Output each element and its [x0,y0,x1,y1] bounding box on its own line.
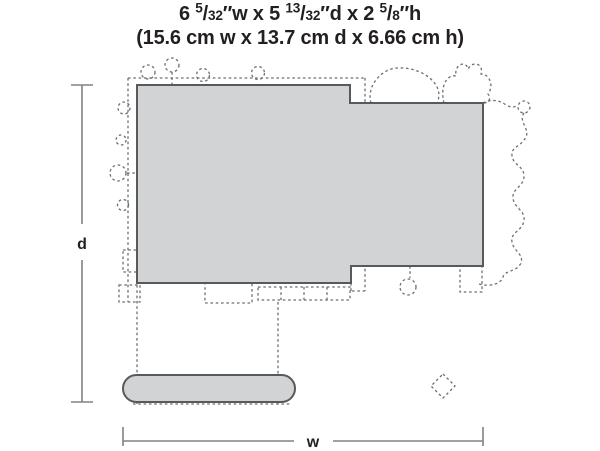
bush-icon [400,279,416,295]
bush-icon [118,200,129,211]
shrub-line-dashed [479,113,527,285]
depth-label: d [77,236,87,253]
porch-outline [460,266,482,292]
bush-icon [518,101,530,113]
step-divider-dashed [281,287,327,300]
bush-icon [141,65,155,79]
tree-outline [443,64,491,103]
footprint-diagram: d w [0,0,600,451]
footprint-diagram-page: 6 5/32″w x 5 13/32″d x 2 5/8″h (15.6 cm … [0,0,600,451]
bush-icon [116,135,126,145]
tree-outline [370,68,439,103]
diamond-detail-outline [431,374,455,398]
building-footprint [137,85,483,283]
shrub-line-dashed [483,100,518,107]
depth-dimension-line: d [71,85,93,402]
bush-icon [165,58,179,72]
bush-icon [197,69,210,82]
width-label: w [306,434,320,451]
width-dimension-line: w [123,427,483,451]
porch-outline [205,283,252,303]
bush-icon [110,165,126,181]
walkway-pad [123,375,295,402]
step-corner-dashed [351,283,365,291]
width-dimension-strokes [123,427,483,446]
